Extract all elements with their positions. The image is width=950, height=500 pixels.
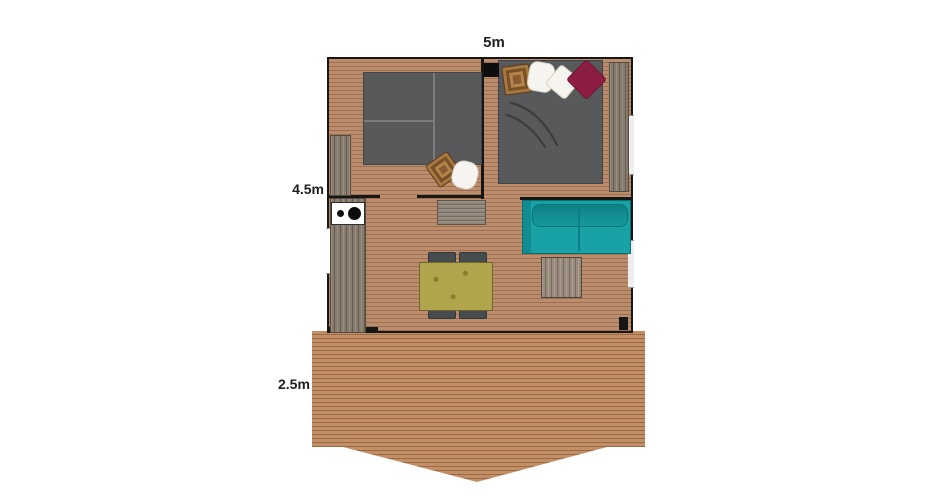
wall-shelf — [437, 200, 486, 225]
utility-box — [484, 63, 499, 77]
bed-throw-arcs-graphic — [505, 95, 567, 151]
wardrobe-right — [609, 62, 629, 192]
terrace-deck — [312, 331, 645, 483]
wall-stub-bottom-right — [619, 317, 628, 330]
sofa-backrest — [532, 204, 628, 227]
stove-burner-large — [348, 207, 361, 220]
stove-burner-small — [337, 210, 344, 217]
dimension-label-depth: 4.5m — [282, 182, 324, 196]
wall-bedroom-left-front-b — [417, 195, 484, 198]
cabin-outline — [327, 57, 633, 333]
wardrobe-left — [330, 135, 351, 196]
bed-divider-horizontal — [364, 120, 433, 122]
bed-divider-vertical — [433, 73, 435, 164]
stove — [331, 202, 365, 225]
sofa-armrest — [523, 201, 531, 253]
sofa-seat-divider — [578, 204, 580, 251]
floor-plan-canvas: 5m 4.5m 2.5m — [0, 0, 950, 500]
twin-beds — [363, 72, 482, 165]
dining-table — [419, 262, 493, 311]
sofa — [522, 200, 631, 254]
coffee-table — [541, 257, 582, 298]
dimension-label-width: 5m — [472, 35, 516, 50]
